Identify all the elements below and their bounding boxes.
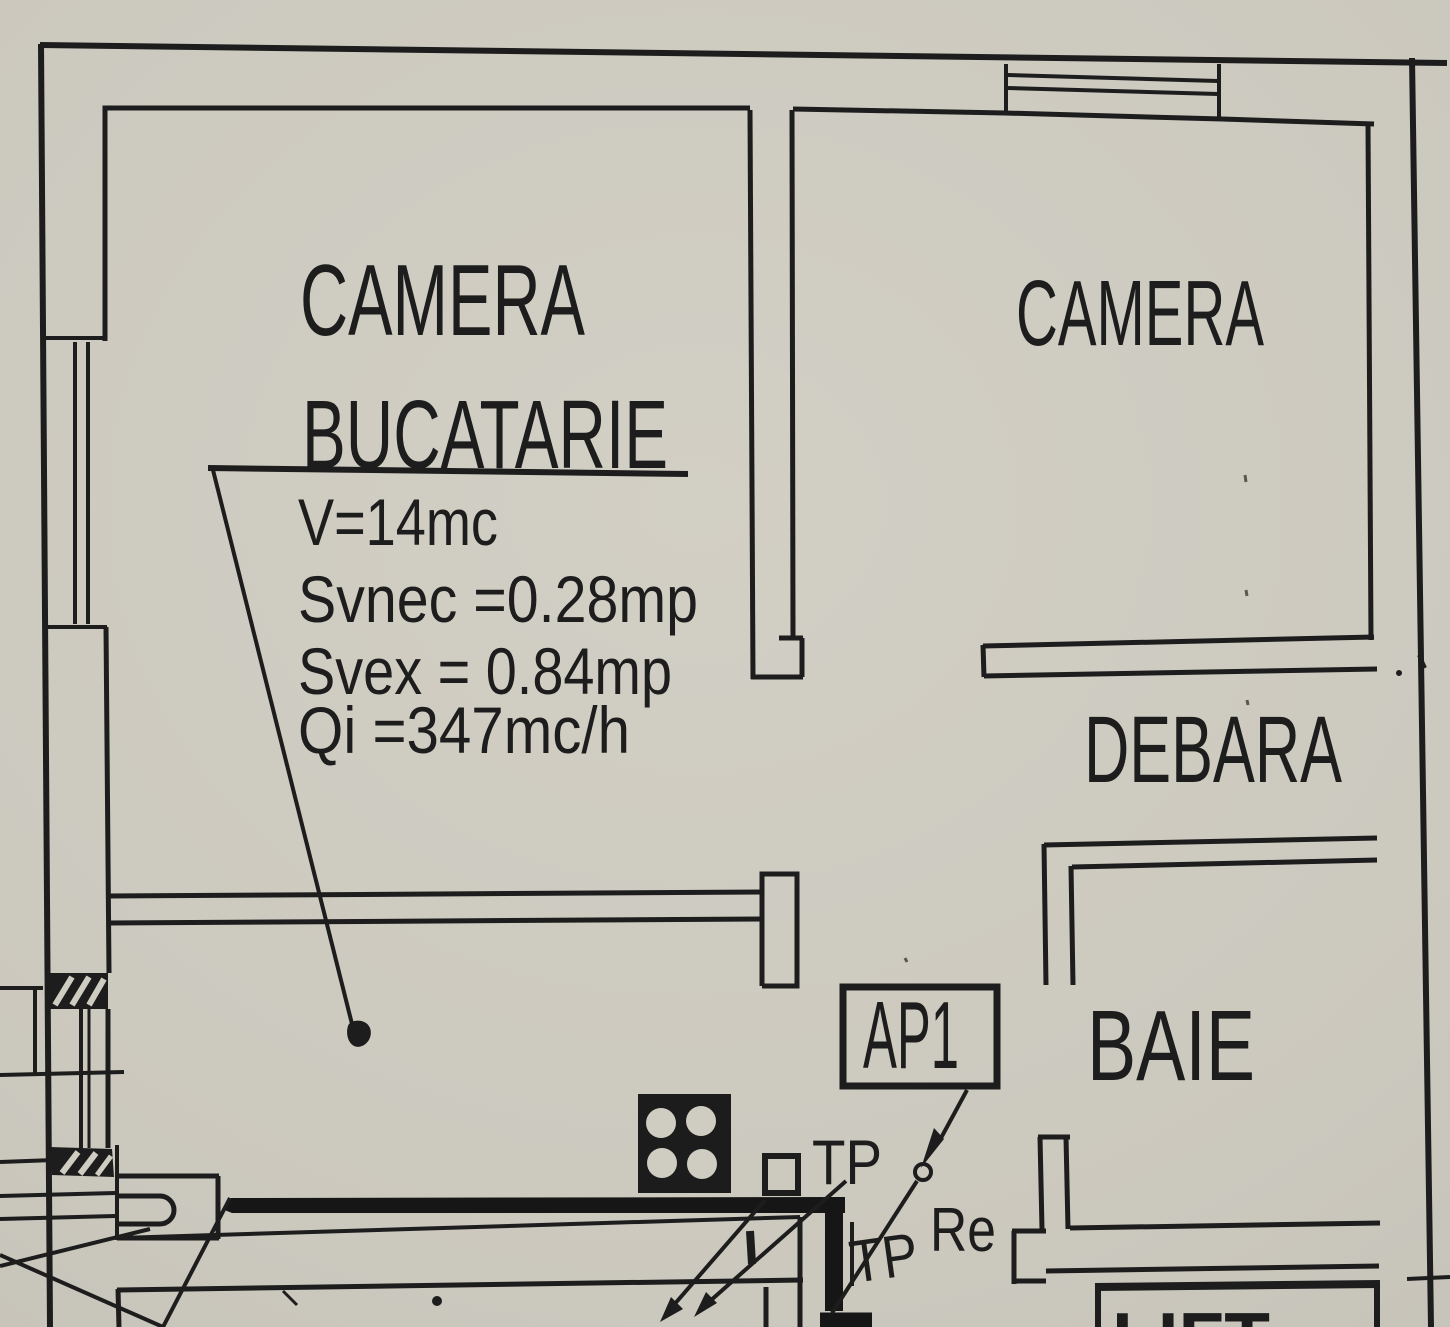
svg-text:BUCATARIE: BUCATARIE — [302, 380, 668, 489]
svg-text:BAIE: BAIE — [1087, 990, 1255, 1102]
svg-text:AP1: AP1 — [863, 982, 959, 1089]
svg-text:CAMERA: CAMERA — [300, 245, 585, 357]
svg-text:DEBARA: DEBARA — [1084, 697, 1342, 803]
svg-text:TP: TP — [812, 1128, 882, 1198]
svg-text:V=14mc: V=14mc — [298, 485, 498, 559]
svg-text:CAMERA: CAMERA — [1016, 261, 1264, 365]
svg-text:TP: TP — [845, 1220, 922, 1296]
svg-text:Re: Re — [930, 1196, 996, 1265]
svg-text:Qi =347mc/h: Qi =347mc/h — [298, 693, 630, 767]
svg-text:LIFT: LIFT — [1112, 1297, 1270, 1327]
svg-text:Svnec =0.28mp: Svnec =0.28mp — [298, 562, 698, 636]
